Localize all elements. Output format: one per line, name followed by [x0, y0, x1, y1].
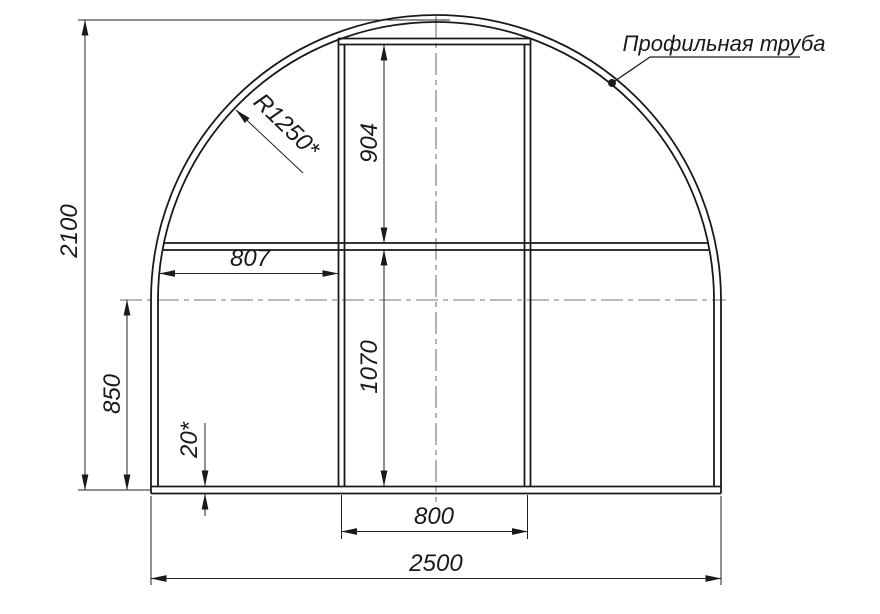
callout-label: Профильная труба — [623, 31, 826, 56]
dim-label-door-width: 800 — [414, 503, 455, 530]
dim-label-door-upper-height: 904 — [356, 123, 383, 163]
dim-base-tube-thickness: 20* — [176, 421, 205, 516]
dim-label-arch-to-door-offset: 807 — [230, 245, 272, 272]
dim-radius: R1250* — [236, 88, 325, 173]
dim-sidewall-height: 850 — [99, 300, 127, 490]
centerlines — [120, 16, 726, 502]
dim-label-base-tube-thickness: 20* — [176, 421, 203, 459]
dim-door-lower-height: 1070 — [356, 250, 384, 486]
callout-profile-tube: Профильная труба — [608, 31, 825, 87]
callout-leader-line — [612, 57, 800, 83]
dim-label-sidewall-height: 850 — [99, 373, 126, 414]
dim-label-overall-width: 2500 — [408, 550, 463, 577]
technical-drawing-page: 2100 850 R1250* 904 807 1070 20* 800 — [0, 0, 880, 614]
greenhouse-frame-drawing: 2100 850 R1250* 904 807 1070 20* 800 — [0, 0, 880, 614]
dim-label-radius: R1250* — [248, 88, 325, 163]
dim-label-overall-height: 2100 — [56, 204, 83, 259]
dim-door-upper-height: 904 — [356, 45, 384, 243]
dim-label-door-lower-height: 1070 — [356, 340, 383, 394]
dim-door-width: 800 — [342, 495, 528, 539]
